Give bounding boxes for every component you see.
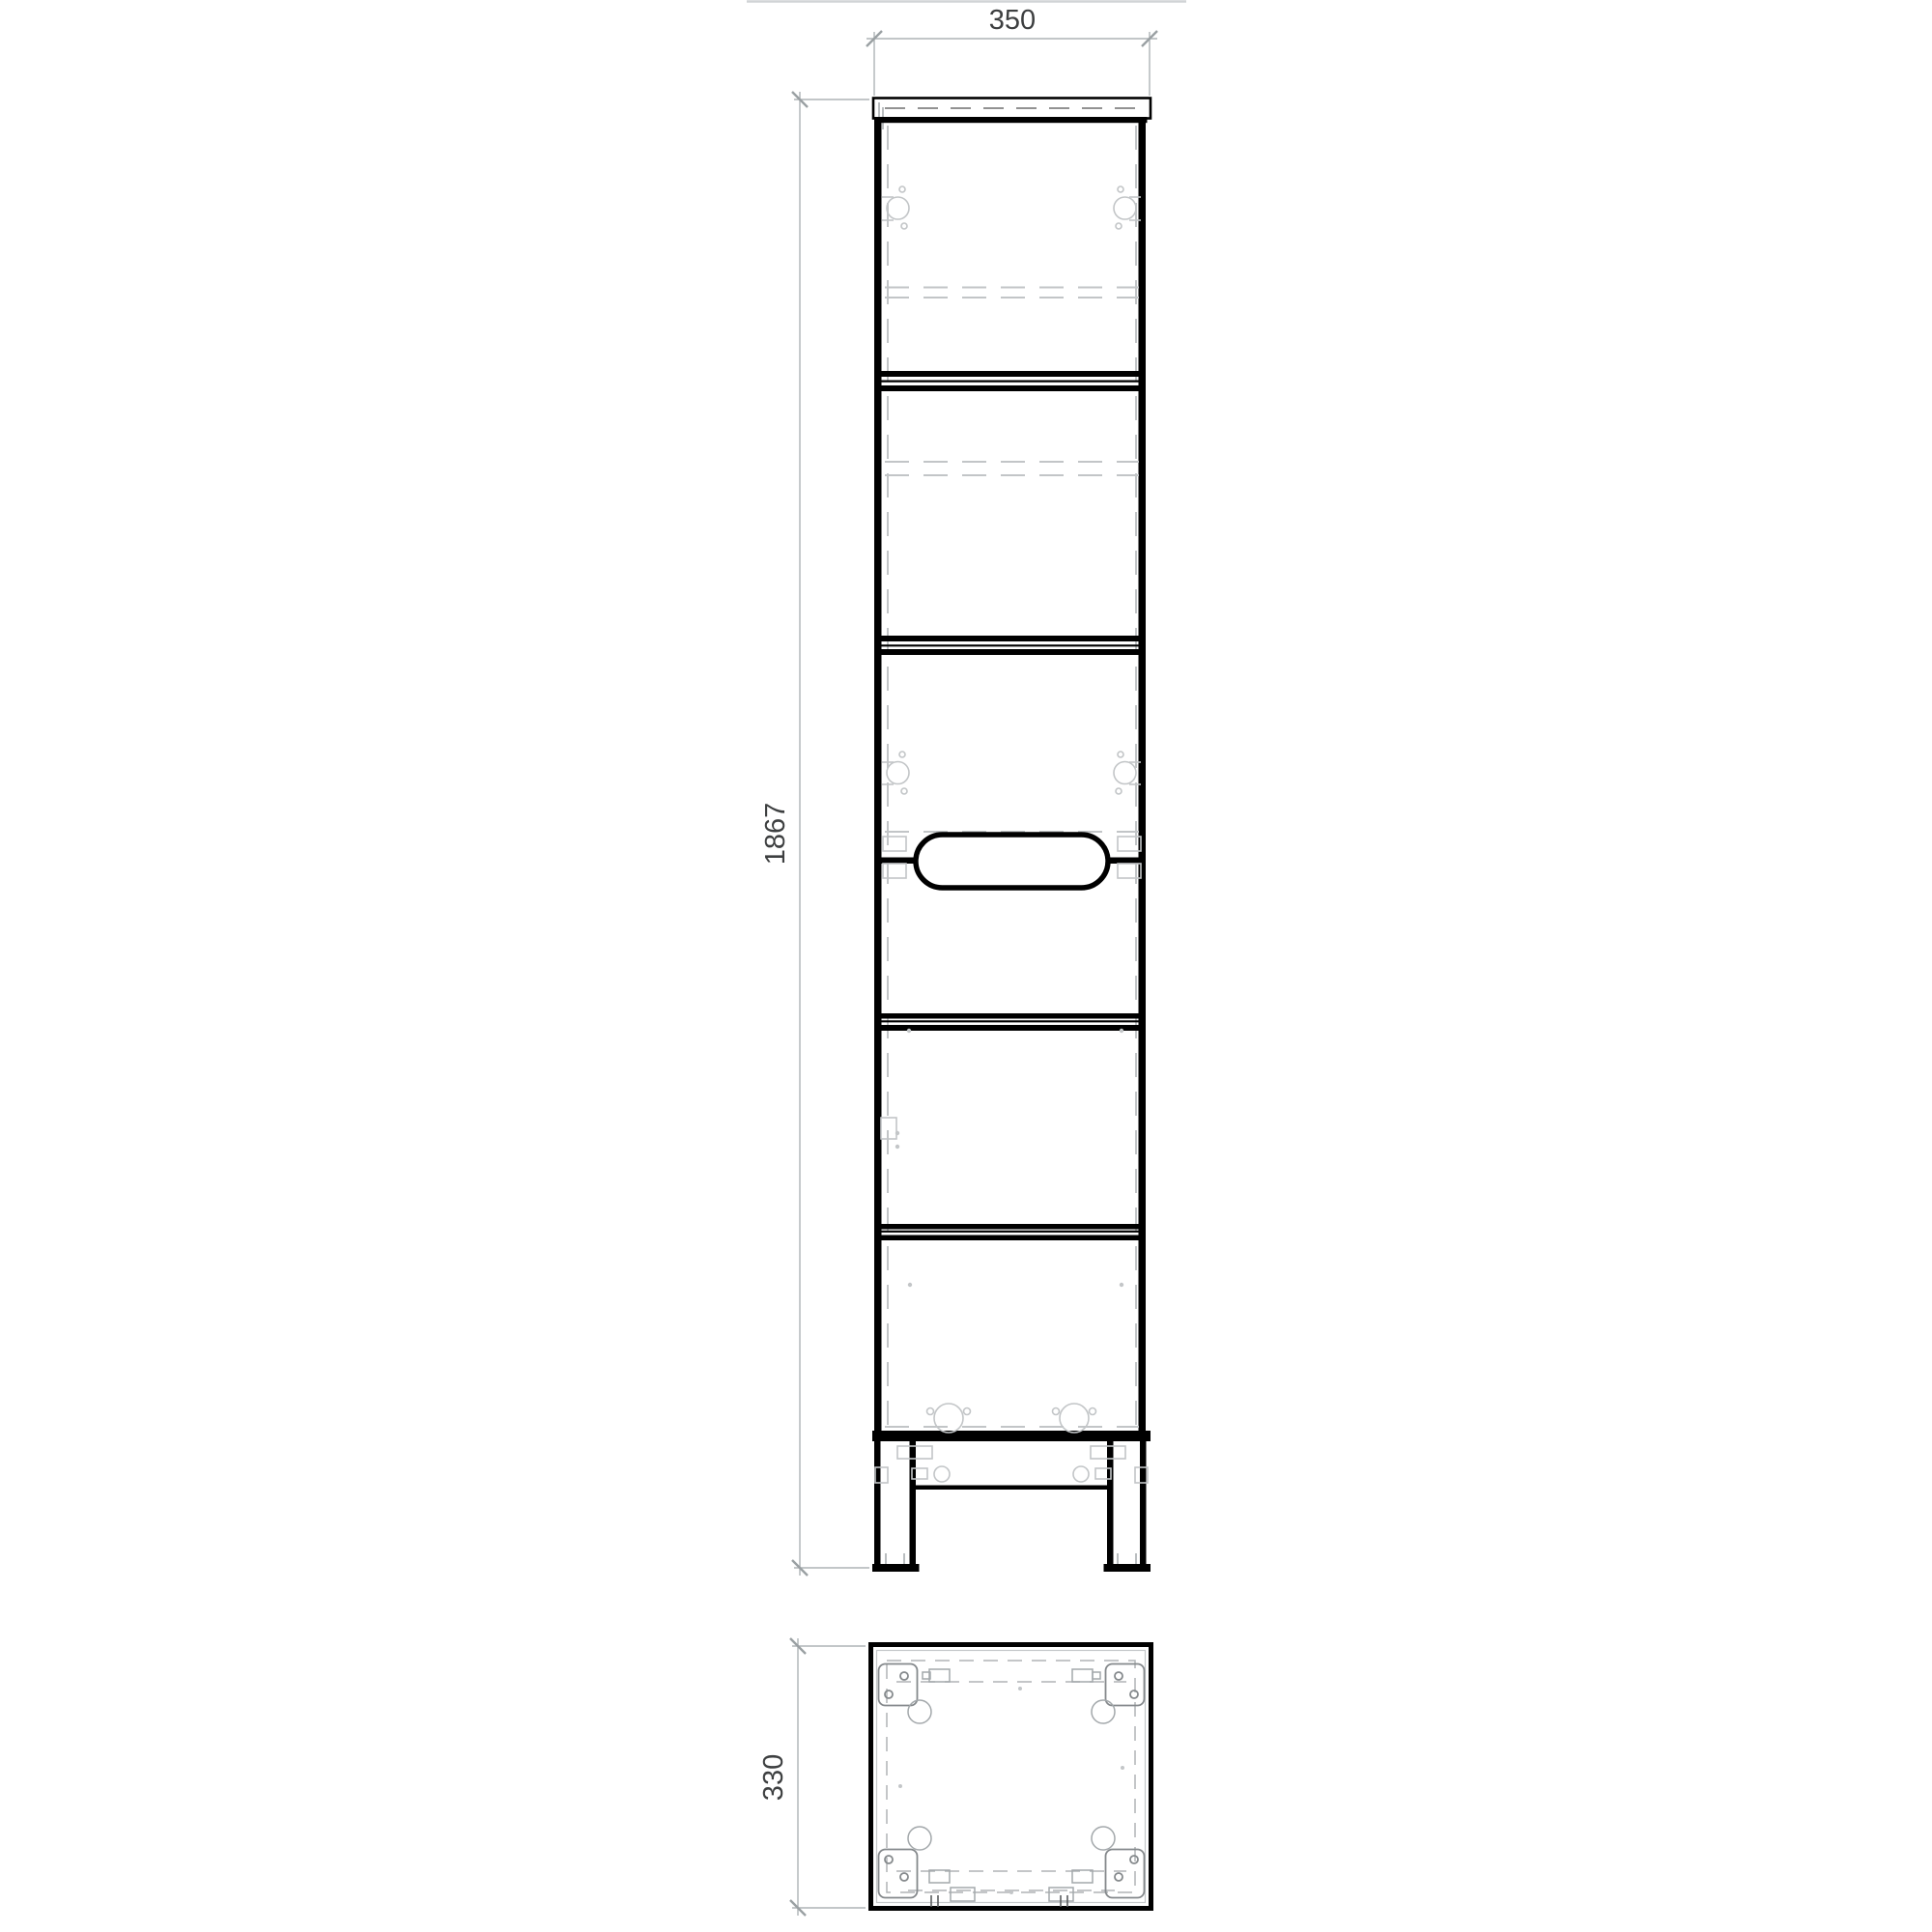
drawing-canvas: 350 1867 [0,0,1932,1932]
bottom-panel-edge [872,1431,1151,1441]
right-leg [1104,1441,1151,1572]
dim-height-label: 1867 [760,803,791,866]
dimension-width: 350 [867,5,1157,96]
top-panel [873,99,1151,119]
carcass-top-edge [876,117,1148,123]
right-side-panel [1139,117,1147,1441]
dim-depth-label: 330 [758,1754,789,1801]
bottom-view [871,1645,1151,1909]
left-leg [872,1441,920,1572]
dimension-height: 1867 [760,92,869,1576]
leg-stretcher [916,1486,1107,1491]
hinge-details [882,186,1141,794]
front-view [872,99,1151,1573]
dimension-depth: 330 [758,1638,866,1916]
corner-leg-plates [879,1664,1145,1898]
door-handle [916,835,1108,888]
dim-width-label: 350 [989,5,1036,36]
left-side-panel [874,117,882,1441]
bottom-view-outline [871,1645,1151,1909]
apron-details [875,1446,1148,1483]
leg-mount-details [927,1404,1096,1433]
technical-drawing: 350 1867 [0,0,1932,1932]
front-dividers [881,371,1139,1240]
